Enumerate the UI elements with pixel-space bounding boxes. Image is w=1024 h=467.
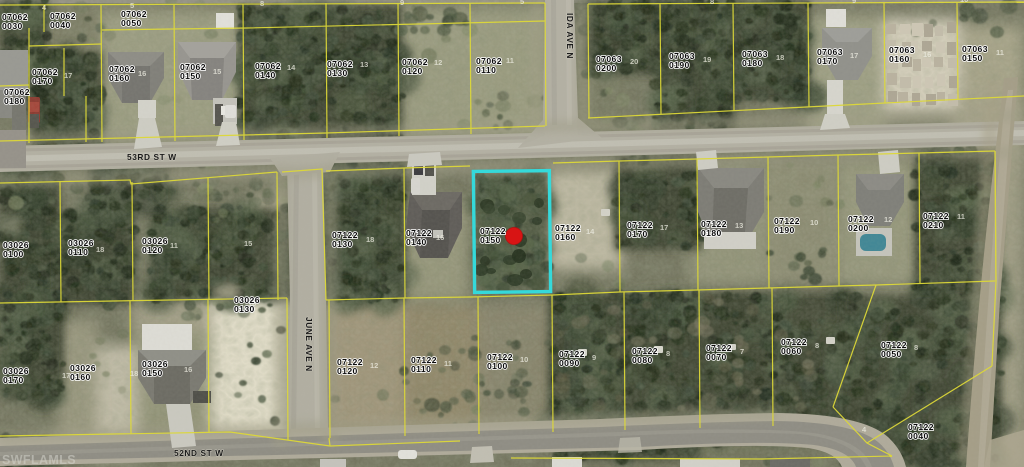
svg-text:0170: 0170 xyxy=(627,229,648,239)
svg-text:12: 12 xyxy=(370,361,378,370)
svg-text:13: 13 xyxy=(360,60,368,69)
svg-text:14: 14 xyxy=(586,227,595,236)
svg-text:0170: 0170 xyxy=(817,56,838,66)
svg-text:17: 17 xyxy=(850,51,858,60)
svg-text:8: 8 xyxy=(914,343,918,352)
svg-text:0030: 0030 xyxy=(2,21,23,31)
svg-text:0150: 0150 xyxy=(480,235,501,245)
svg-text:17: 17 xyxy=(660,223,668,232)
svg-text:10: 10 xyxy=(810,218,818,227)
svg-text:18: 18 xyxy=(130,369,138,378)
svg-text:18: 18 xyxy=(96,245,104,254)
svg-text:0150: 0150 xyxy=(142,368,163,378)
svg-text:0210: 0210 xyxy=(923,220,944,230)
svg-text:52ND ST W: 52ND ST W xyxy=(174,448,224,458)
svg-text:0040: 0040 xyxy=(908,431,929,441)
svg-text:0110: 0110 xyxy=(411,364,431,374)
svg-text:0130: 0130 xyxy=(332,239,353,249)
svg-text:8: 8 xyxy=(710,0,714,6)
svg-text:JUNE AVE N: JUNE AVE N xyxy=(304,317,314,372)
svg-text:0050: 0050 xyxy=(881,349,902,359)
svg-text:0140: 0140 xyxy=(255,70,276,80)
svg-text:18: 18 xyxy=(366,235,374,244)
svg-text:0060: 0060 xyxy=(781,346,802,356)
svg-text:8: 8 xyxy=(260,0,264,8)
svg-text:15: 15 xyxy=(213,67,221,76)
svg-text:0180: 0180 xyxy=(742,58,763,68)
svg-text:5: 5 xyxy=(520,0,524,6)
svg-text:0180: 0180 xyxy=(701,228,722,238)
svg-text:10: 10 xyxy=(520,355,528,364)
svg-text:IDA AVE N: IDA AVE N xyxy=(565,13,575,59)
svg-text:16: 16 xyxy=(184,365,192,374)
svg-text:12: 12 xyxy=(884,215,892,224)
svg-text:0190: 0190 xyxy=(774,225,795,235)
svg-text:0120: 0120 xyxy=(142,245,163,255)
svg-text:0130: 0130 xyxy=(234,304,255,314)
svg-text:0040: 0040 xyxy=(50,20,71,30)
svg-text:14: 14 xyxy=(287,63,296,72)
svg-text:0110: 0110 xyxy=(68,247,88,257)
svg-text:0070: 0070 xyxy=(706,352,727,362)
svg-text:16: 16 xyxy=(923,50,931,59)
svg-text:0140: 0140 xyxy=(406,237,427,247)
svg-text:18: 18 xyxy=(776,53,784,62)
svg-text:11: 11 xyxy=(170,241,178,250)
svg-text:0110: 0110 xyxy=(476,65,496,75)
svg-text:13: 13 xyxy=(735,221,743,230)
svg-text:10: 10 xyxy=(960,0,968,4)
svg-text:9: 9 xyxy=(592,353,596,362)
svg-text:0190: 0190 xyxy=(669,60,690,70)
svg-text:0160: 0160 xyxy=(109,73,130,83)
svg-text:20: 20 xyxy=(630,57,638,66)
svg-text:16: 16 xyxy=(138,69,146,78)
svg-text:12: 12 xyxy=(434,58,442,67)
svg-text:0100: 0100 xyxy=(487,361,508,371)
svg-text:9: 9 xyxy=(400,0,404,7)
svg-text:0170: 0170 xyxy=(32,76,53,86)
svg-text:0050: 0050 xyxy=(121,18,142,28)
svg-text:16: 16 xyxy=(436,233,444,242)
svg-text:0180: 0180 xyxy=(4,96,25,106)
svg-text:0100: 0100 xyxy=(3,249,24,259)
svg-text:0160: 0160 xyxy=(889,54,910,64)
svg-text:0150: 0150 xyxy=(962,53,983,63)
svg-text:0170: 0170 xyxy=(3,375,24,385)
svg-text:53RD ST W: 53RD ST W xyxy=(127,152,177,162)
svg-text:SWFLAMLS: SWFLAMLS xyxy=(2,453,76,467)
svg-text:9: 9 xyxy=(852,0,856,5)
svg-text:0200: 0200 xyxy=(596,63,617,73)
svg-text:0130: 0130 xyxy=(327,68,348,78)
svg-text:0120: 0120 xyxy=(337,366,358,376)
svg-text:0160: 0160 xyxy=(70,372,91,382)
svg-text:11: 11 xyxy=(996,48,1004,57)
svg-text:0160: 0160 xyxy=(555,232,576,242)
svg-text:19: 19 xyxy=(703,55,711,64)
svg-text:0150: 0150 xyxy=(180,71,201,81)
svg-text:17: 17 xyxy=(64,71,72,80)
svg-text:0090: 0090 xyxy=(559,358,580,368)
svg-text:7: 7 xyxy=(740,347,744,356)
svg-text:11: 11 xyxy=(957,212,965,221)
svg-text:0120: 0120 xyxy=(402,66,423,76)
svg-text:0080: 0080 xyxy=(632,355,653,365)
svg-text:11: 11 xyxy=(444,359,452,368)
svg-text:0200: 0200 xyxy=(848,223,869,233)
svg-text:8: 8 xyxy=(815,341,819,350)
svg-text:8: 8 xyxy=(666,349,670,358)
svg-text:15: 15 xyxy=(244,239,252,248)
svg-text:11: 11 xyxy=(506,56,514,65)
